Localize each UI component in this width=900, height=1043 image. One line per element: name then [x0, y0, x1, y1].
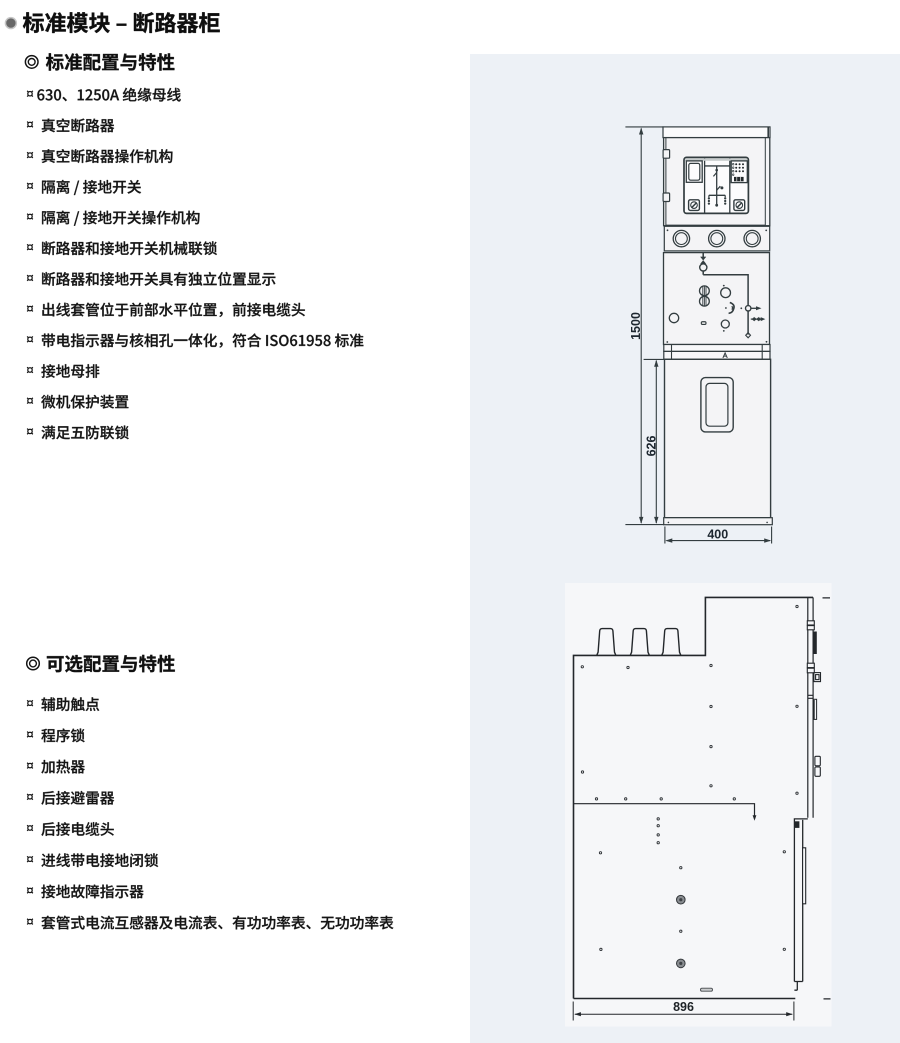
- svg-text:1500: 1500: [629, 312, 643, 340]
- svg-text:400: 400: [707, 528, 728, 542]
- svg-text:626: 626: [645, 436, 659, 457]
- svg-text:896: 896: [673, 1000, 694, 1014]
